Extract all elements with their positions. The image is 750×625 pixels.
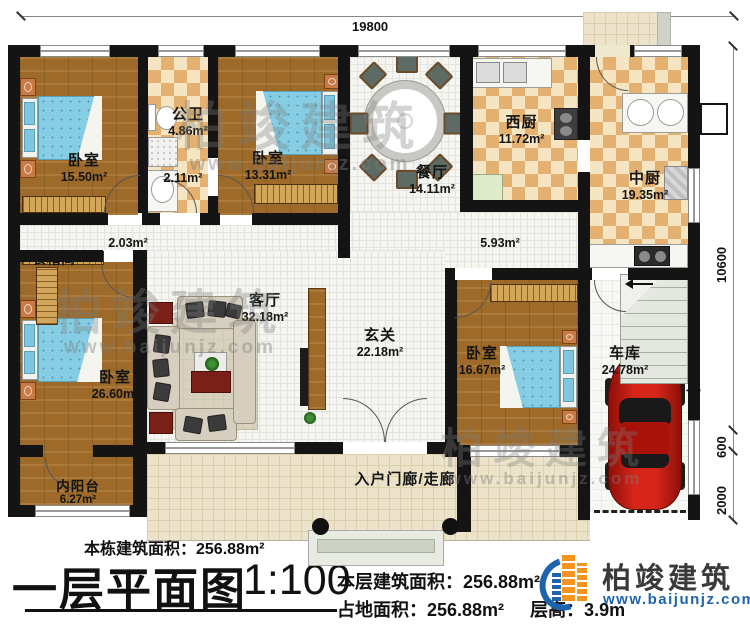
brand-url: www.baijunjz.com bbox=[603, 591, 750, 608]
room-label-foyer: 玄关 22.18m² bbox=[330, 328, 430, 359]
title-underline bbox=[25, 609, 337, 612]
garage-door-dashed bbox=[594, 510, 686, 513]
side-table bbox=[149, 412, 173, 434]
floor-area: 本层建筑面积：256.88m² bbox=[337, 568, 540, 594]
kitchen-sink-round bbox=[627, 99, 654, 126]
shower-tray bbox=[148, 137, 178, 167]
window bbox=[470, 445, 560, 457]
side-table bbox=[149, 302, 173, 324]
right-dimension-mid: 600 bbox=[714, 418, 729, 458]
dining-chair bbox=[350, 113, 369, 135]
sofa bbox=[175, 408, 237, 441]
dining-table-center bbox=[397, 113, 413, 129]
wall bbox=[142, 213, 160, 225]
bed-pillow bbox=[24, 102, 35, 125]
rear-pad bbox=[583, 12, 657, 46]
window bbox=[634, 45, 682, 57]
kitchen-sink bbox=[503, 62, 527, 83]
wall bbox=[445, 268, 455, 280]
car-roof bbox=[621, 422, 669, 454]
flue-box bbox=[700, 103, 728, 135]
room-label-corridor-left: 2.03m² bbox=[93, 236, 163, 250]
floor-porch bbox=[147, 454, 590, 540]
right-dimension-front: 2000 bbox=[714, 463, 729, 515]
kitchen-sink bbox=[476, 62, 500, 83]
brand-logo: 柏竣建筑 www.baijunjz.com bbox=[540, 549, 745, 619]
bed bbox=[500, 330, 578, 424]
room-label-living: 客厅 32.18m² bbox=[215, 293, 315, 324]
wall bbox=[492, 268, 592, 280]
burner bbox=[639, 251, 650, 262]
stairs-arrow-line bbox=[631, 283, 653, 285]
nightstand bbox=[20, 300, 36, 318]
logo-building-orange bbox=[577, 563, 587, 601]
burner bbox=[655, 251, 666, 262]
kitchen-sink-round bbox=[657, 99, 684, 126]
wall bbox=[578, 280, 590, 520]
entry-step-tread bbox=[317, 539, 435, 553]
room-label-balcony: 内阳台 6.27m² bbox=[28, 479, 128, 507]
room-label-wash: 2.11m² bbox=[152, 171, 214, 185]
room-label-cloakroom: 衣帽间 bbox=[18, 252, 90, 267]
floor-mid-kitchen bbox=[590, 57, 688, 268]
bed-pillow bbox=[324, 124, 335, 149]
porch-column bbox=[442, 518, 459, 535]
nightstand bbox=[562, 410, 577, 424]
car-rear-window bbox=[621, 454, 669, 468]
dining-table bbox=[365, 81, 445, 161]
room-label-porch: 入户门廊/走廊 bbox=[285, 472, 525, 489]
floor-plan-page: 19800 10600 600 2000 bbox=[0, 0, 750, 625]
bed-pillow bbox=[563, 350, 574, 374]
window bbox=[235, 45, 320, 57]
stove bbox=[634, 246, 670, 266]
window bbox=[40, 45, 110, 57]
chaise bbox=[233, 320, 256, 424]
stairs-up-label: 上 bbox=[686, 374, 701, 395]
wall bbox=[20, 213, 108, 225]
bed-sheet-fold bbox=[256, 91, 296, 155]
wall bbox=[208, 196, 218, 213]
tv bbox=[300, 348, 308, 406]
logo-icon bbox=[540, 551, 598, 615]
nightstand bbox=[562, 330, 577, 344]
wall bbox=[578, 172, 590, 268]
logo-building-blue bbox=[552, 573, 561, 601]
room-label-mid-kitchen: 中厨 19.35m² bbox=[595, 171, 695, 202]
wall bbox=[628, 268, 700, 280]
wall bbox=[93, 445, 133, 457]
door-opening bbox=[595, 45, 630, 57]
bed-sheet-fold bbox=[60, 96, 102, 160]
window bbox=[358, 45, 450, 57]
wall bbox=[200, 213, 220, 225]
nightstand bbox=[20, 382, 36, 400]
wall bbox=[295, 442, 343, 454]
wall bbox=[252, 213, 338, 225]
room-label-west-kitchen: 西厨 11.72m² bbox=[474, 115, 569, 146]
room-label-corridor-right: 5.93m² bbox=[464, 236, 536, 250]
land-area: 占地面积：256.88m² bbox=[337, 600, 504, 620]
bed-pillow bbox=[24, 324, 35, 347]
nightstand bbox=[20, 78, 36, 96]
room-label-bedroom4: 卧室 16.67m² bbox=[432, 346, 532, 377]
room-label-bedroom1: 卧室 15.50m² bbox=[34, 153, 134, 184]
wall bbox=[8, 445, 43, 457]
bed-pillow bbox=[324, 95, 335, 120]
top-dimension-label: 19800 bbox=[352, 19, 388, 34]
stairs-arrow-head bbox=[625, 279, 633, 289]
floor-corridor-left bbox=[20, 225, 338, 250]
plant bbox=[205, 357, 219, 371]
bed-pillow bbox=[24, 351, 35, 374]
car-windshield bbox=[619, 398, 671, 424]
wall bbox=[133, 442, 165, 454]
room-label-bathroom: 公卫 4.86m² bbox=[148, 107, 228, 138]
wall bbox=[460, 200, 590, 212]
bed-pillow bbox=[24, 129, 35, 152]
wall bbox=[338, 45, 350, 258]
window bbox=[478, 45, 566, 57]
room-label-garage: 车库 24.78m² bbox=[575, 346, 675, 377]
window bbox=[688, 420, 700, 495]
living-red-rug bbox=[191, 371, 231, 393]
rear-pad-edge bbox=[657, 12, 671, 46]
wardrobe bbox=[36, 267, 58, 325]
window bbox=[158, 45, 204, 57]
entry-step bbox=[308, 530, 444, 566]
wardrobe bbox=[22, 196, 106, 213]
window bbox=[165, 442, 295, 454]
wardrobe bbox=[490, 284, 578, 302]
porch-column bbox=[312, 518, 329, 535]
room-label-dining: 餐厅 14.11m² bbox=[384, 165, 480, 196]
room-label-bedroom3: 卧室 26.60m² bbox=[65, 370, 165, 401]
plant bbox=[304, 412, 316, 424]
bed-pillow bbox=[563, 378, 574, 402]
logo-building-orange bbox=[562, 555, 575, 601]
room-label-bedroom2: 卧室 13.31m² bbox=[218, 151, 318, 182]
right-dimension-main: 10600 bbox=[714, 198, 729, 283]
wall bbox=[578, 57, 590, 140]
wall bbox=[457, 454, 471, 532]
wardrobe bbox=[254, 184, 338, 204]
